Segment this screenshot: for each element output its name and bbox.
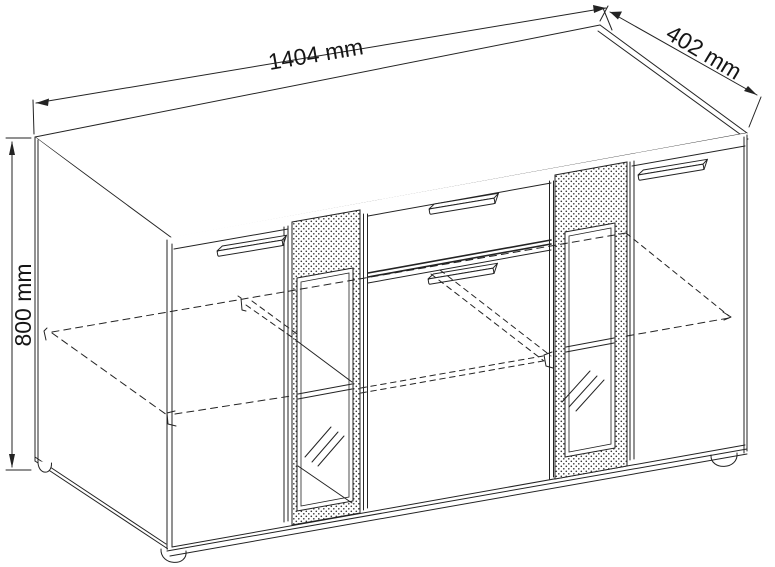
width-dimension-label: 1404 mm <box>266 33 365 75</box>
arrowhead <box>9 141 15 155</box>
right-glass-compartment <box>565 223 615 457</box>
right-display-column <box>555 162 627 479</box>
arrowhead <box>9 454 15 468</box>
arrowhead <box>744 86 757 95</box>
height-dimension-label: 800 mm <box>10 263 36 346</box>
depth-dimension-label: 402 mm <box>662 20 747 85</box>
left-display-column <box>292 210 360 525</box>
sideboard-technical-drawing: 1404 mm 402 mm 800 mm <box>0 0 775 567</box>
height-dimension: 800 mm <box>6 138 36 470</box>
furniture-dimension-drawing: 1404 mm 402 mm 800 mm <box>0 0 775 567</box>
